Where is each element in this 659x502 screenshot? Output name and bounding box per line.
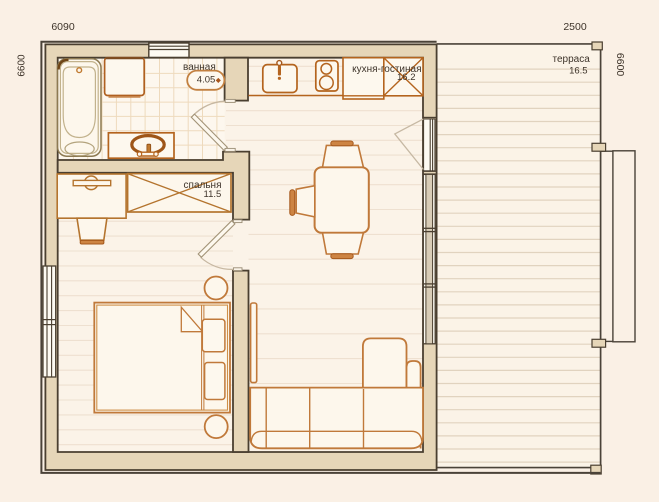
svg-text:2500: 2500 xyxy=(563,21,587,33)
svg-text:4.05: 4.05 xyxy=(197,74,216,85)
svg-text:6600: 6600 xyxy=(614,53,626,77)
svg-text:6090: 6090 xyxy=(51,21,75,33)
svg-text:терраса: терраса xyxy=(553,54,591,65)
svg-text:11.5: 11.5 xyxy=(204,189,222,200)
svg-text:6600: 6600 xyxy=(17,54,28,77)
svg-text:16.2: 16.2 xyxy=(397,72,416,83)
svg-text:16.5: 16.5 xyxy=(569,65,588,76)
